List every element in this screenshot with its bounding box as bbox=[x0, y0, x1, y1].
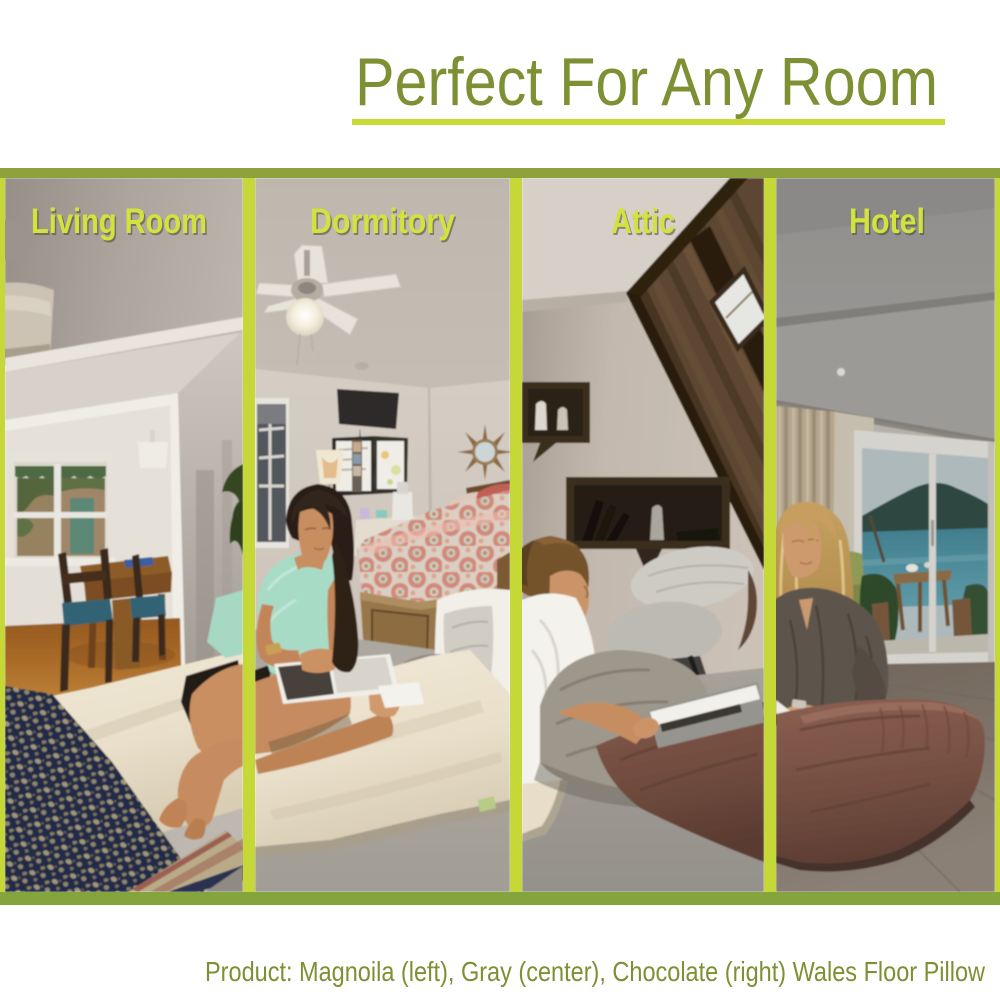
svg-text:Living Room: Living Room bbox=[31, 202, 207, 241]
svg-text:Hotel: Hotel bbox=[849, 202, 925, 241]
svg-text:Perfect For Any Room: Perfect For Any Room bbox=[355, 44, 938, 120]
svg-text:Attic: Attic bbox=[611, 202, 675, 241]
svg-text:Product: Magnoila (left), Gray: Product: Magnoila (left), Gray (center),… bbox=[205, 956, 985, 987]
svg-text:Dormitory: Dormitory bbox=[310, 202, 455, 241]
